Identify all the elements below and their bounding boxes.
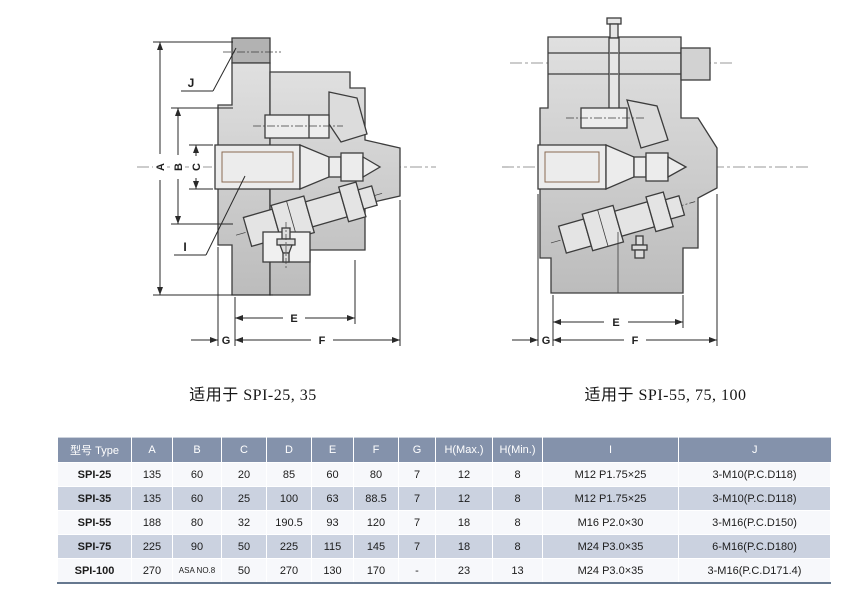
table-cell: 270 <box>132 559 173 584</box>
flange-cap <box>232 38 270 63</box>
dim-label-b: B <box>173 163 185 171</box>
table-cell: - <box>399 559 436 584</box>
spec-table-body: SPI-2513560208560807128M12 P1.75×253-M10… <box>58 463 831 584</box>
table-cell: 135 <box>132 487 173 511</box>
table-cell: 3-M16(P.C.D171.4) <box>679 559 831 584</box>
col-header-9: H(Min.) <box>493 438 543 463</box>
table-cell: 50 <box>222 535 267 559</box>
table-cell: 20 <box>222 463 267 487</box>
table-cell: 225 <box>132 535 173 559</box>
table-cell: 93 <box>312 511 354 535</box>
col-header-2: B <box>173 438 222 463</box>
dim-label-e: E <box>290 313 297 325</box>
table-cell: M16 P2.0×30 <box>543 511 679 535</box>
table-cell: 3-M16(P.C.D150) <box>679 511 831 535</box>
table-cell: SPI-55 <box>58 511 132 535</box>
table-cell: 8 <box>493 487 543 511</box>
table-cell: 8 <box>493 535 543 559</box>
table-cell: 7 <box>399 535 436 559</box>
table-cell: 60 <box>173 487 222 511</box>
table-cell: 7 <box>399 511 436 535</box>
table-cell: 145 <box>354 535 399 559</box>
right-diagram-svg: E F G <box>496 8 816 368</box>
table-cell: 32 <box>222 511 267 535</box>
dim-label-a: A <box>155 163 167 171</box>
col-header-5: E <box>312 438 354 463</box>
table-row-SPI-25: SPI-2513560208560807128M12 P1.75×253-M10… <box>58 463 831 487</box>
caption-right-models: 适用于 SPI-55, 75, 100 <box>548 381 783 405</box>
table-cell: 88.5 <box>354 487 399 511</box>
table-cell: 80 <box>354 463 399 487</box>
col-header-3: C <box>222 438 267 463</box>
table-cell: 225 <box>267 535 312 559</box>
left-diagram-svg: A B C J I E F G <box>133 8 443 368</box>
table-cell: 23 <box>436 559 493 584</box>
dim-label-g: G <box>222 335 231 347</box>
table-cell: 12 <box>436 463 493 487</box>
upper-piston <box>265 115 329 138</box>
table-cell: 3-M10(P.C.D118) <box>679 487 831 511</box>
spec-table-header: 型号 TypeABCDEFGH(Max.)H(Min.)IJ <box>58 438 831 463</box>
table-cell: 50 <box>222 559 267 584</box>
caption-left-models: 适用于 SPI-25, 35 <box>138 381 368 405</box>
section-body <box>538 18 717 293</box>
table-cell: 7 <box>399 463 436 487</box>
table-cell: 60 <box>173 463 222 487</box>
dim-label-e: E <box>612 317 619 329</box>
dim-label-f: F <box>319 335 326 347</box>
col-header-0: 型号 Type <box>58 438 132 463</box>
table-cell: 80 <box>173 511 222 535</box>
side-block <box>681 48 710 80</box>
table-cell: M24 P3.0×35 <box>543 535 679 559</box>
table-cell: 3-M10(P.C.D118) <box>679 463 831 487</box>
col-header-6: F <box>354 438 399 463</box>
table-cell: 90 <box>173 535 222 559</box>
right-assembly-diagram: E F G <box>496 8 816 368</box>
table-cell: 7 <box>399 487 436 511</box>
table-cell: 6-M16(P.C.D180) <box>679 535 831 559</box>
table-row-SPI-100: SPI-100270ASA NO.850270130170-2313M24 P3… <box>58 559 831 584</box>
col-header-10: I <box>543 438 679 463</box>
table-cell: 188 <box>132 511 173 535</box>
col-header-1: A <box>132 438 173 463</box>
table-cell: 190.5 <box>267 511 312 535</box>
table-cell: 18 <box>436 535 493 559</box>
top-bolt <box>607 18 621 118</box>
table-cell: 130 <box>312 559 354 584</box>
table-row-SPI-75: SPI-7522590502251151457188M24 P3.0×356-M… <box>58 535 831 559</box>
col-header-8: H(Max.) <box>436 438 493 463</box>
table-cell: 8 <box>493 511 543 535</box>
table-cell: 85 <box>267 463 312 487</box>
dim-label-f: F <box>632 335 639 347</box>
dimension-arrows <box>530 319 717 343</box>
dim-label-i: I <box>183 240 186 254</box>
table-cell: 13 <box>493 559 543 584</box>
table-cell: SPI-35 <box>58 487 132 511</box>
section-body <box>215 38 400 295</box>
col-header-11: J <box>679 438 831 463</box>
table-cell: ASA NO.8 <box>173 559 222 584</box>
table-cell: SPI-100 <box>58 559 132 584</box>
table-cell: 18 <box>436 511 493 535</box>
left-assembly-diagram: A B C J I E F G <box>133 8 443 368</box>
table-cell: M12 P1.75×25 <box>543 487 679 511</box>
dim-label-j: J <box>188 76 195 90</box>
table-cell: 12 <box>436 487 493 511</box>
col-header-7: G <box>399 438 436 463</box>
col-header-4: D <box>267 438 312 463</box>
table-cell: 135 <box>132 463 173 487</box>
table-cell: SPI-25 <box>58 463 132 487</box>
table-cell: M24 P3.0×35 <box>543 559 679 584</box>
spec-table: 型号 TypeABCDEFGH(Max.)H(Min.)IJ SPI-25135… <box>57 437 831 584</box>
table-cell: 100 <box>267 487 312 511</box>
table-cell: 115 <box>312 535 354 559</box>
table-cell: M12 P1.75×25 <box>543 463 679 487</box>
table-cell: 170 <box>354 559 399 584</box>
table-cell: 120 <box>354 511 399 535</box>
table-row-SPI-35: SPI-3513560251006388.57128M12 P1.75×253-… <box>58 487 831 511</box>
dim-label-c: C <box>191 163 203 171</box>
table-cell: 63 <box>312 487 354 511</box>
table-cell: 270 <box>267 559 312 584</box>
dim-label-g: G <box>542 335 551 347</box>
table-cell: 25 <box>222 487 267 511</box>
table-row-SPI-55: SPI-551888032190.5931207188M16 P2.0×303-… <box>58 511 831 535</box>
table-cell: 8 <box>493 463 543 487</box>
table-cell: 60 <box>312 463 354 487</box>
table-cell: SPI-75 <box>58 535 132 559</box>
